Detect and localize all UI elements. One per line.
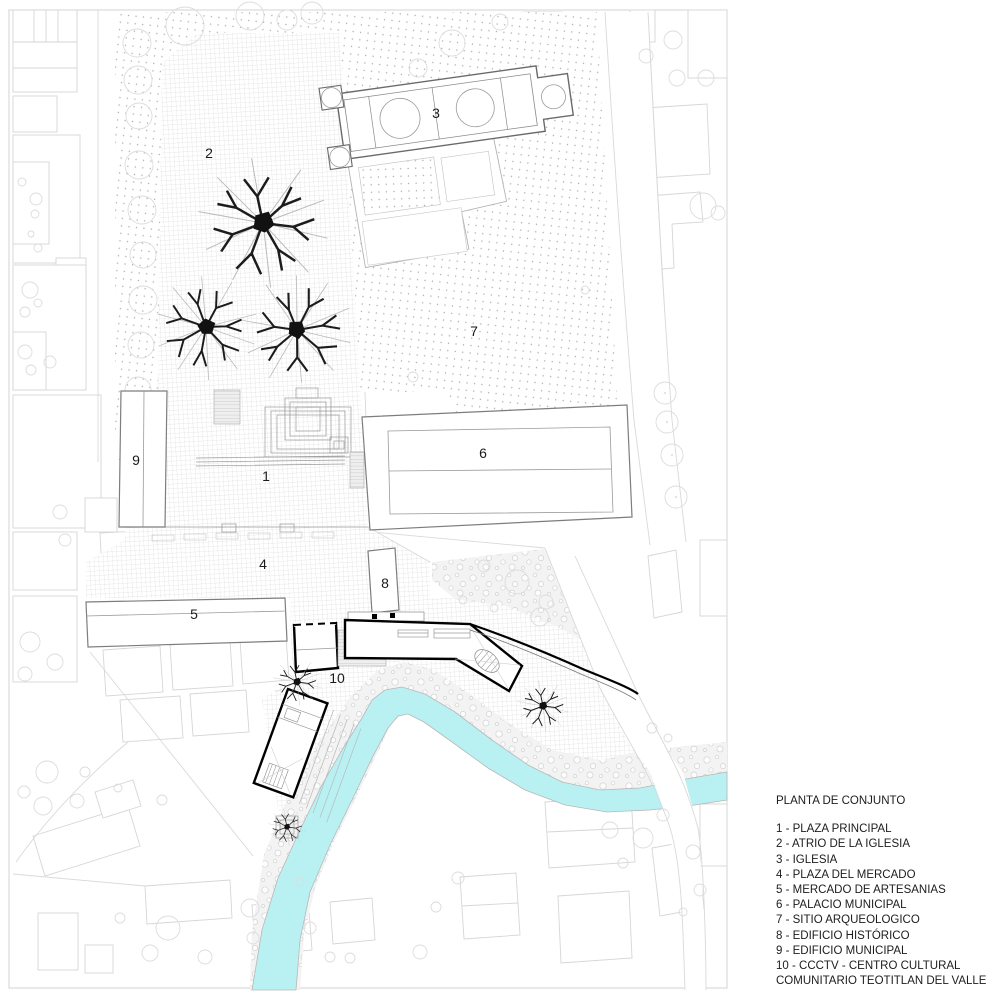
legend-item: 4 - PLAZA DEL MERCADO (776, 868, 991, 883)
legend-item: 1 - PLAZA PRINCIPAL (776, 822, 991, 837)
legend-item: 2 - ATRIO DE LA IGLESIA (776, 837, 991, 852)
edificio-municipal-9 (119, 391, 167, 527)
pavilion-west (294, 623, 338, 672)
site-plan-page: 1 2 3 4 5 6 7 8 9 10 PLANTA DE CONJUNTO … (0, 0, 994, 1000)
stairs (350, 452, 364, 488)
label-palacio: 6 (479, 445, 487, 461)
label-plaza-principal: 1 (262, 468, 270, 484)
legend-title: PLANTA DE CONJUNTO (776, 794, 991, 809)
legend-item: 6 - PALACIO MUNICIPAL (776, 898, 991, 913)
plaza-principal-paving (157, 455, 368, 527)
label-edificio-historico: 8 (381, 575, 389, 591)
stairs (214, 390, 240, 424)
label-sitio-arqueologico: 7 (470, 323, 478, 339)
legend-item: 3 - IGLESIA (776, 853, 991, 868)
legend-items: 1 - PLAZA PRINCIPAL 2 - ATRIO DE LA IGLE… (776, 822, 991, 989)
label-plaza-mercado: 4 (259, 556, 267, 572)
legend-item: 10 - CCCTV - CENTRO CULTURAL (776, 959, 991, 974)
label-centro-cultural: 10 (329, 670, 345, 686)
legend: PLANTA DE CONJUNTO 1 - PLAZA PRINCIPAL 2… (776, 794, 991, 989)
palacio-municipal-6 (362, 405, 632, 530)
mercado-artesanias-5 (86, 598, 287, 647)
legend-item: 7 - SITIO ARQUEOLOGICO (776, 913, 991, 928)
legend-item: COMUNITARIO TEOTITLAN DEL VALLE (776, 974, 991, 989)
legend-item: 9 - EDIFICIO MUNICIPAL (776, 944, 991, 959)
legend-item: 8 - EDIFICIO HISTÓRICO (776, 929, 991, 944)
label-mercado: 5 (190, 606, 198, 622)
label-edificio-municipal: 9 (132, 452, 140, 468)
label-atrio: 2 (205, 145, 213, 161)
label-iglesia: 3 (432, 105, 440, 121)
legend-item: 5 - MERCADO DE ARTESANIAS (776, 883, 991, 898)
